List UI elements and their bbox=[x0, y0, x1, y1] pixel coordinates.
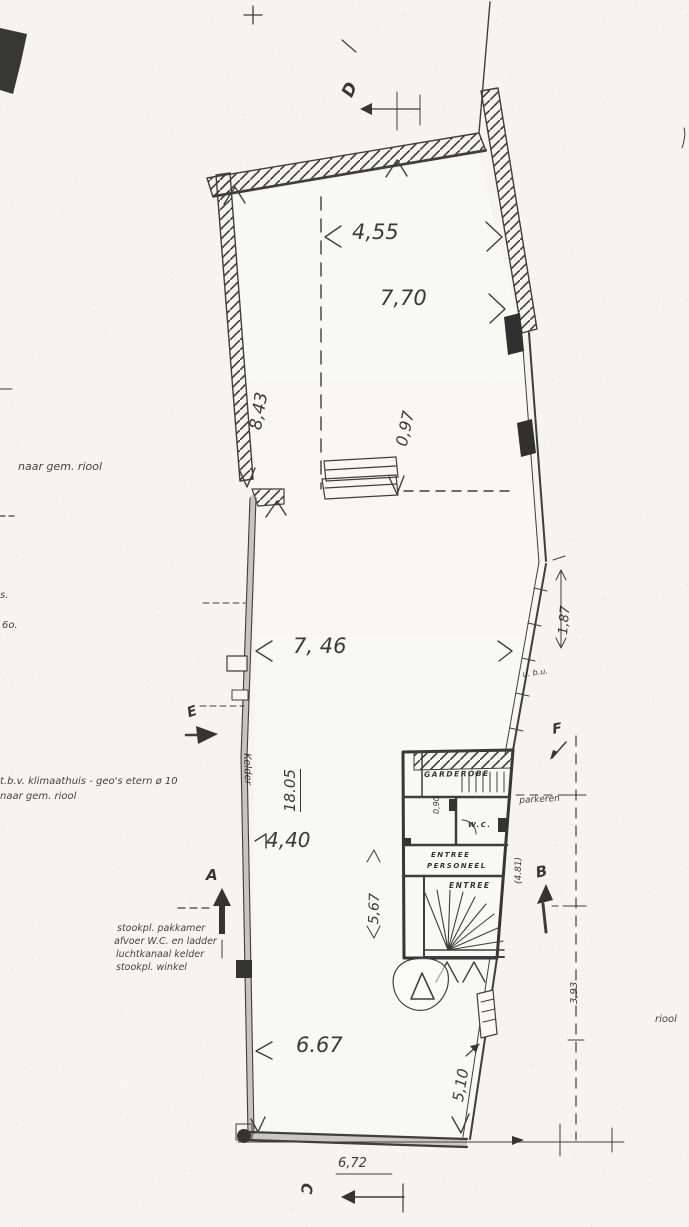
plan-linework bbox=[0, 0, 689, 1227]
note-stook-line2: afvoer W.C. en ladder bbox=[114, 936, 217, 947]
dim-7-70: 7,70 bbox=[380, 286, 427, 310]
scanned-floorplan-sheet: D 4,55 7,70 8,43 0,97 7, 46 1,87 u. b.u.… bbox=[0, 0, 689, 1227]
dim-0-90: 0,90 bbox=[432, 796, 441, 814]
note-riool-upper: naar gem. riool bbox=[18, 460, 102, 473]
section-marker-a: A bbox=[206, 866, 218, 884]
note-riool-right: riool bbox=[655, 1014, 677, 1025]
room-entree-personeel-line2: PERSONEEL bbox=[427, 862, 487, 870]
dim-4-40: 4,40 bbox=[266, 828, 311, 852]
section-marker-f: F bbox=[551, 720, 563, 737]
note-stook-line4: stookpl. winkel bbox=[116, 962, 187, 973]
dim-7-46: 7, 46 bbox=[293, 634, 346, 658]
room-wc: W.C. bbox=[468, 821, 492, 829]
label-kelder: Kelder bbox=[241, 753, 253, 785]
dim-5-67: 5,67 bbox=[366, 893, 383, 925]
note-klimaat-line2: naar gem. riool bbox=[0, 791, 76, 802]
room-garderobe: GARDEROBE bbox=[424, 769, 490, 779]
note-fragment-6o: 6o. bbox=[2, 620, 18, 631]
dim-1-87: 1,87 bbox=[556, 605, 573, 635]
section-marker-c: C bbox=[297, 1182, 316, 1195]
note-parkeren: parkeren bbox=[519, 794, 560, 806]
note-stook-line3: luchtkanaal kelder bbox=[116, 949, 204, 960]
note-klimaat-line1: t.b.v. klimaathuis - geo's etern ø 10 bbox=[0, 776, 178, 787]
note-fragment-s: s. bbox=[0, 590, 8, 601]
dim-6-72: 6,72 bbox=[338, 1156, 367, 1171]
dim-18-05: 18.05 bbox=[281, 769, 301, 812]
room-entree-personeel-line1: ENTREE bbox=[431, 851, 470, 859]
dim-4-81: (4.81) bbox=[514, 857, 524, 884]
room-entree: ENTREE bbox=[449, 881, 491, 890]
dim-4-55: 4,55 bbox=[352, 220, 399, 244]
dim-3-93: 3,93 bbox=[569, 982, 580, 1004]
dim-6-67: 6.67 bbox=[296, 1033, 343, 1057]
note-stook-line1: stookpl. pakkamer bbox=[117, 923, 205, 934]
